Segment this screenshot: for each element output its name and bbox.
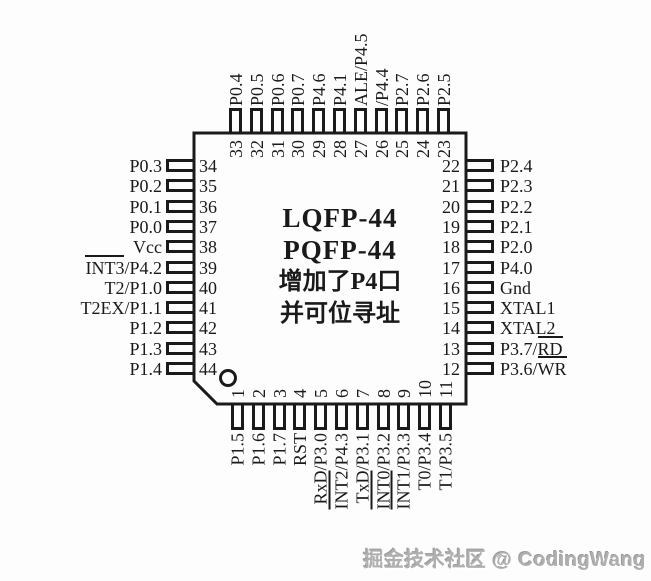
- pin-label-text-2: P1.6: [249, 433, 269, 466]
- pin-label-24: P2.6: [414, 73, 432, 106]
- pin-label-31: P0.6: [269, 73, 287, 106]
- pin-label-text-9: /P3.3: [394, 433, 414, 471]
- pin-label-23: P2.5: [435, 73, 453, 106]
- watermark: 掘金技术社区 @ CodingWang: [363, 543, 646, 572]
- pin-number-12: 12: [442, 359, 460, 379]
- pin-label-6: INT2/P4.3: [333, 433, 351, 510]
- pin-label-text-23: P2.5: [434, 73, 454, 106]
- pin-label-text-17: P4.0: [500, 258, 533, 278]
- pin-label-38: Vcc: [133, 237, 162, 257]
- pin-number-3: 3: [271, 389, 289, 398]
- pin-label-text-36: P0.1: [129, 197, 162, 217]
- pin-number-27: 27: [352, 140, 370, 158]
- package-name-pqfp: PQFP-44: [210, 234, 470, 266]
- pin-number-5: 5: [312, 389, 330, 398]
- pin-label-9: INT1/P3.3: [395, 433, 413, 510]
- pin-label-2: P1.6: [250, 433, 268, 466]
- pin-label-12: P3.6/WR: [500, 359, 567, 379]
- pin-label-text-12: P3.6/: [500, 359, 538, 379]
- pin-label-text-10: T0/P3.4: [415, 433, 435, 491]
- pin-label-29: P4.6: [310, 73, 328, 106]
- pin-label-text-40: T2/P1.0: [104, 278, 162, 298]
- pin-label-text-41: T2EX/P1.1: [80, 298, 162, 318]
- chip-title-block: LQFP-44 PQFP-44 增加了P4口 并可位寻址: [210, 202, 470, 330]
- pin-label-text-4: RST: [290, 433, 310, 466]
- pin-label-28: P4.1: [331, 73, 349, 106]
- pin-label-27: ALE/P4.5: [352, 33, 370, 106]
- pin-label-20: P2.2: [500, 197, 533, 217]
- pin-label-text-32: P0.5: [247, 73, 267, 106]
- pin-number-31: 31: [269, 140, 287, 158]
- pin-label-40: T2/P1.0: [104, 278, 162, 298]
- pin-label-text-37: P0.0: [129, 217, 162, 237]
- pin-label-text-1: P1.5: [228, 433, 248, 466]
- pin-number-33: 33: [227, 140, 245, 158]
- pin-label-text-38: Vcc: [133, 237, 162, 257]
- pin-number-22: 22: [442, 156, 460, 176]
- pin-label-text-13: P3.7/: [500, 339, 538, 359]
- pin-label-text-6: /P4.3: [332, 433, 352, 471]
- pin-label-14: XTAL2: [500, 318, 556, 338]
- pin-number-35: 35: [199, 176, 217, 196]
- pin-label-3: P1.7: [271, 433, 289, 466]
- pin-label-text-24: P2.6: [413, 73, 433, 106]
- pin-label-10: T0/P3.4: [416, 433, 434, 491]
- pin-label-text-18: P2.0: [500, 237, 533, 257]
- pin-number-4: 4: [291, 389, 309, 398]
- pin-label-32: P0.5: [248, 73, 266, 106]
- pin-label-4: RST: [291, 433, 309, 466]
- pin-label-text-26: /P4.4: [372, 68, 392, 106]
- pin-label-text-44: P1.4: [129, 359, 162, 379]
- pin-label-text-42: P1.2: [129, 318, 162, 338]
- pin-label-text-22: P2.4: [500, 156, 533, 176]
- pin-label-19: P2.1: [500, 217, 533, 237]
- pin-label-text-33: P0.4: [226, 73, 246, 106]
- pin-label-text-3: P1.7: [270, 433, 290, 466]
- pin-label-17: P4.0: [500, 258, 533, 278]
- pin-label-44: P1.4: [129, 359, 162, 379]
- pin-number-2: 2: [250, 389, 268, 398]
- pin-label-34: P0.3: [129, 156, 162, 176]
- pin-label-42: P1.2: [129, 318, 162, 338]
- pin-label-5: RxD/P3.0: [312, 433, 330, 505]
- pin-label-33: P0.4: [227, 73, 245, 106]
- pin-label-21: P2.3: [500, 176, 533, 196]
- pin-label-39: INT3/P4.2: [85, 258, 162, 278]
- pin-label-overline-9: INT1: [391, 471, 414, 510]
- pin-label-text-43: P1.3: [129, 339, 162, 359]
- pin-number-43: 43: [199, 339, 217, 359]
- pin-number-8: 8: [375, 389, 393, 398]
- pin-number-25: 25: [393, 140, 411, 158]
- pin-label-text-39: /P4.2: [124, 258, 162, 278]
- pin-label-7: TxD/P3.1: [354, 433, 372, 504]
- pinout-diagram: 33P0.432P0.531P0.630P0.729P4.628P4.127AL…: [0, 0, 651, 581]
- pin-label-18: P2.0: [500, 237, 533, 257]
- pin-number-1: 1: [229, 389, 247, 398]
- pin-label-overline-39: INT3: [85, 255, 124, 278]
- pin-label-text-11: T1/P3.5: [436, 433, 456, 491]
- pin-label-text-25: P2.7: [392, 73, 412, 106]
- pin-label-11: T1/P3.5: [437, 433, 455, 491]
- pin-label-26: /P4.4: [373, 68, 391, 106]
- pin-number-26: 26: [373, 140, 391, 158]
- chip-note-line-1: 增加了P4口: [210, 266, 470, 298]
- pin-label-25: P2.7: [393, 73, 411, 106]
- pin-label-text-20: P2.2: [500, 197, 533, 217]
- pin-label-text-27: ALE/P4.5: [351, 33, 371, 106]
- pin-label-text-30: P0.7: [288, 73, 308, 106]
- pin-number-30: 30: [289, 140, 307, 158]
- package-name-lqfp: LQFP-44: [210, 202, 470, 234]
- pin-number-13: 13: [442, 339, 460, 359]
- pin-label-text-28: P4.1: [330, 73, 350, 106]
- chip-note-line-2: 并可位寻址: [210, 298, 470, 330]
- pin-label-36: P0.1: [129, 197, 162, 217]
- pin-label-text-21: P2.3: [500, 176, 533, 196]
- pin-label-text-16: Gnd: [500, 278, 531, 298]
- pin-number-32: 32: [248, 140, 266, 158]
- pin-number-44: 44: [199, 359, 217, 379]
- pin-number-28: 28: [331, 140, 349, 158]
- pin-number-10: 10: [416, 380, 434, 398]
- pin-label-1: P1.5: [229, 433, 247, 466]
- pin-label-text-29: P4.6: [309, 73, 329, 106]
- pin-label-30: P0.7: [289, 73, 307, 106]
- pin-number-9: 9: [395, 389, 413, 398]
- pin-label-text-14: XTAL2: [500, 318, 556, 338]
- pin-label-15: XTAL1: [500, 298, 556, 318]
- pin-number-11: 11: [437, 381, 455, 398]
- pin-number-6: 6: [333, 389, 351, 398]
- pin-label-text-8: /P3.2: [374, 433, 394, 471]
- pin-label-overline-12: WR: [538, 356, 567, 379]
- pin-label-43: P1.3: [129, 339, 162, 359]
- pin-label-16: Gnd: [500, 278, 531, 298]
- pin-label-22: P2.4: [500, 156, 533, 176]
- pin-label-overline-6: INT2: [329, 471, 352, 510]
- pin-label-41: T2EX/P1.1: [80, 298, 162, 318]
- pin-label-text-31: P0.6: [268, 73, 288, 106]
- pin-number-34: 34: [199, 156, 217, 176]
- pin-number-7: 7: [354, 389, 372, 398]
- pin-label-35: P0.2: [129, 176, 162, 196]
- pin-label-text-19: P2.1: [500, 217, 533, 237]
- pin-number-21: 21: [442, 176, 460, 196]
- pin-number-29: 29: [310, 140, 328, 158]
- pin-label-text-34: P0.3: [129, 156, 162, 176]
- pin-label-text-15: XTAL1: [500, 298, 556, 318]
- pin-number-24: 24: [414, 140, 432, 158]
- pin-label-text-35: P0.2: [129, 176, 162, 196]
- pin-label-37: P0.0: [129, 217, 162, 237]
